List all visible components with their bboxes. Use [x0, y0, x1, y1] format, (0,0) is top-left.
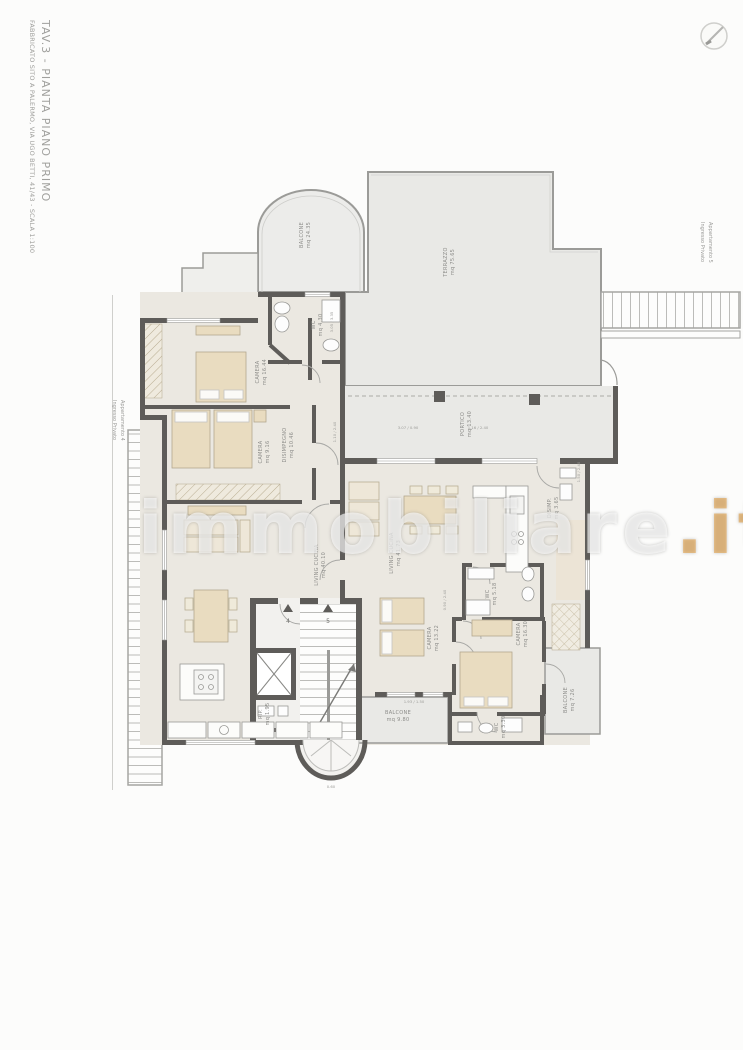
wardrobe — [552, 604, 580, 650]
room-area-living4: mq 40.10 — [321, 552, 327, 578]
walkway-apartment5 — [601, 292, 740, 338]
floor-plan-page: TAV.3 - PIANTA PIANO PRIMO FABBRICATO SI… — [0, 0, 743, 1050]
sink — [458, 722, 472, 732]
bidet — [522, 587, 534, 601]
room-area-wc-top: mq 4.30 — [318, 314, 324, 337]
sideboard — [188, 506, 246, 515]
dim-label: 3.05 / 3.35 — [329, 311, 334, 332]
room-area-portico: mq 13.40 — [467, 411, 473, 437]
apartment5-corridor — [556, 520, 586, 600]
sink — [560, 468, 576, 478]
room-label-wc-mid: WC — [485, 589, 491, 598]
room-label-living5: LIVING CUCINA — [389, 532, 395, 574]
sink — [510, 496, 524, 514]
room-area-living5: mq 41.73 — [396, 540, 402, 566]
room-area-camera-c: mq 13.22 — [434, 625, 440, 651]
room-area-camera-e: mq 16.30 — [523, 621, 529, 647]
bidet — [323, 339, 339, 351]
entrance-label-apartment5-line2: Appartamento 5 — [707, 222, 713, 263]
elevator — [257, 653, 291, 695]
room-area-wc-mid: mq 5.18 — [492, 583, 498, 606]
room-label-portico: PORTICO — [460, 412, 466, 436]
sofa — [349, 482, 379, 536]
room-area-camera-w: mq 9.16 — [265, 441, 271, 464]
room-label-balcone-nw: BALCONE — [299, 222, 305, 248]
room-label-rip: RIP. — [258, 709, 264, 719]
room-label-terrazzo: TERRAZZO — [443, 247, 449, 278]
wardrobe — [144, 324, 162, 398]
room-label-disimp5: DISIMP. — [547, 498, 553, 518]
entrance-label-apartment5: Ingresso Privato — [699, 222, 705, 262]
room-area-wc-s: mq 3.30 — [501, 716, 507, 739]
shower — [466, 600, 490, 615]
room-area-balcone-s: mq 9.80 — [387, 717, 410, 723]
double-sink — [468, 568, 494, 579]
toilet — [275, 316, 289, 332]
room-area-balcone-e: mq 7.26 — [570, 689, 576, 712]
shower — [560, 484, 572, 500]
kitchen-counter — [168, 722, 342, 738]
wardrobe — [176, 484, 280, 500]
north-compass-icon — [701, 23, 727, 49]
dim-label: 1.16 / 2.40 — [468, 425, 489, 430]
dim-label: 0.60 — [327, 784, 336, 789]
room-label-balcone-e: BALCONE — [563, 687, 569, 713]
dim-label: 1.93 / 1.50 — [404, 699, 425, 704]
room-area-disimp5: mq 3.65 — [554, 497, 560, 520]
entrance-label-apartment4-line2: Appartamento 4 — [119, 400, 125, 441]
room-label-camera-c: CAMERA — [427, 626, 433, 649]
room-area-terrazzo: mq 75.65 — [450, 249, 456, 275]
nightstand — [254, 410, 266, 422]
room-area-disimpegno4: mq 10.46 — [289, 432, 295, 458]
dim-label: 1.10 / 2.40 — [332, 421, 337, 442]
room-area-balcone-nw: mq 24.35 — [306, 222, 312, 248]
dim-label: 0.90 / 2.40 — [442, 589, 447, 610]
room-label-camera-w: CAMERA — [258, 440, 264, 463]
twin-beds — [172, 410, 266, 468]
sink — [274, 302, 290, 314]
door-number-4: 4 — [286, 618, 290, 625]
room-label-camera-e: CAMERA — [516, 622, 522, 645]
dining-table — [404, 486, 458, 534]
portico-pillar — [434, 391, 445, 402]
room-area-rip: mq 1.95 — [265, 703, 271, 726]
toilet — [522, 567, 534, 581]
floor-plan-svg: 4 5 — [0, 0, 743, 1050]
portico-pillar — [529, 394, 540, 405]
portico-corner-curve — [601, 360, 617, 385]
kitchen-island — [180, 664, 224, 700]
room-label-disimpegno4: DISIMPEGNO — [282, 427, 288, 462]
terrace — [345, 172, 601, 386]
door-number-5: 5 — [326, 618, 330, 625]
room-label-balcone-s: BALCONE — [385, 710, 411, 716]
dim-label: 1.50 / 2.40 — [576, 461, 581, 482]
room-label-wc-s: WC — [494, 722, 500, 731]
dresser — [196, 326, 240, 335]
dresser — [472, 620, 512, 636]
room-label-living4: LIVING CUCINA — [314, 544, 320, 586]
room-label-camera-nw: CAMERA — [255, 360, 261, 383]
entrance-label-apartment4: Ingresso Privato — [111, 400, 117, 440]
room-area-camera-nw: mq 16.44 — [262, 359, 268, 385]
room-label-wc-top: WC — [311, 320, 317, 329]
dim-label: 3.07 / 0.90 — [398, 425, 419, 430]
toilet — [479, 723, 493, 733]
double-bed — [196, 352, 246, 402]
